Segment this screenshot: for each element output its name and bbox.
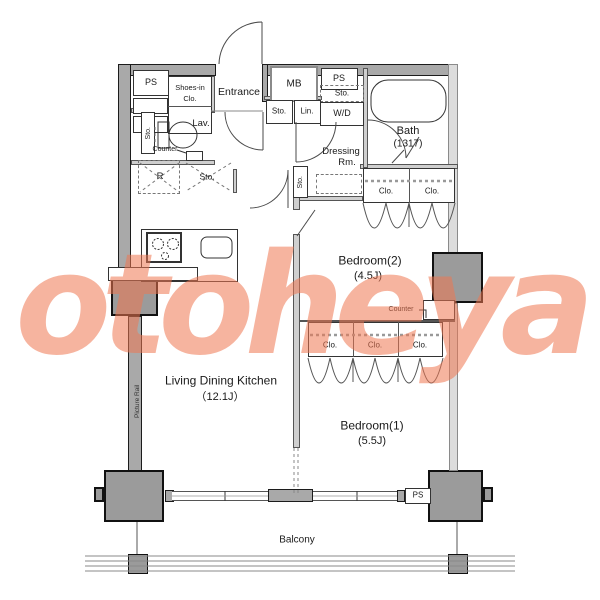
picture-rail-label: Picture Rail [134,358,141,418]
ps-label-top-right: PS [333,74,345,84]
partition-dashed-section [294,448,298,496]
counter-lav-leader [177,150,186,153]
bedroom1-closet-label-3: Clo. [413,342,427,351]
bathtub [371,80,446,122]
ldk-label: Living Dining Kitchen [165,374,277,387]
bedroom1-closet-label-2: Clo. [368,342,382,351]
storage-entry-label: Sto. [272,108,286,117]
bath-label-leader [392,150,404,163]
kitchen-sink [201,237,232,258]
stove-burner-1 [153,239,164,250]
counter-lav-label: Counter [153,146,178,154]
entrance-door-arc [219,22,262,64]
fridge-label: R [157,172,164,182]
dressing-label-2: Rm. [338,158,355,168]
bedroom1-closet-swings [308,358,443,383]
bedroom1-size-label: (5.5J) [358,435,386,447]
lav-door-arc [225,112,263,150]
storage-kitchen-label: Sto. [199,172,214,181]
washer-dryer-label: W/D [333,109,351,119]
mb-label: MB [287,79,302,90]
bedroom2-closet-label-2: Clo. [425,188,439,197]
bedroom2-closet-label-1: Clo. [379,188,393,197]
bedroom2-door-leaf [297,210,315,236]
bedroom1-closet-label-1: Clo. [323,342,337,351]
toilet-tank [158,122,169,148]
bedroom1-label: Bedroom(1) [340,419,403,432]
counter-bedroom2-label: Counter [389,306,414,314]
bath-size-label: (1317) [394,139,423,150]
dressing-label-1: Dressing [322,147,360,157]
stove-burner-2 [168,239,179,250]
counter-bedroom2-leader [419,310,426,318]
floor-plan: PS Shoes-in Clo. Entrance MB PS Sto. W/D… [0,0,600,600]
plan-linework [0,0,600,600]
balcony-label: Balcony [279,535,315,546]
bedroom2-label: Bedroom(2) [338,254,401,267]
storage-above-wd-label: Sto. [335,90,349,99]
ps-label-bottom: PS [413,492,424,501]
shoes-closet-label2: Clo. [183,95,196,103]
linen-label: Lin. [301,108,314,117]
entrance-label: Entrance [218,87,260,99]
shoes-closet-label1: Shoes-in [175,84,205,92]
ldk-size-label: （12.1J） [196,391,245,403]
bath-label: Bath [397,125,420,137]
bedroom2-size-label: (4.5J) [354,270,382,282]
lav-label: Lav. [192,119,209,129]
ps-label-top-left: PS [145,78,157,88]
stove-burner-3 [162,253,169,260]
ldk-door-arc [250,170,288,208]
